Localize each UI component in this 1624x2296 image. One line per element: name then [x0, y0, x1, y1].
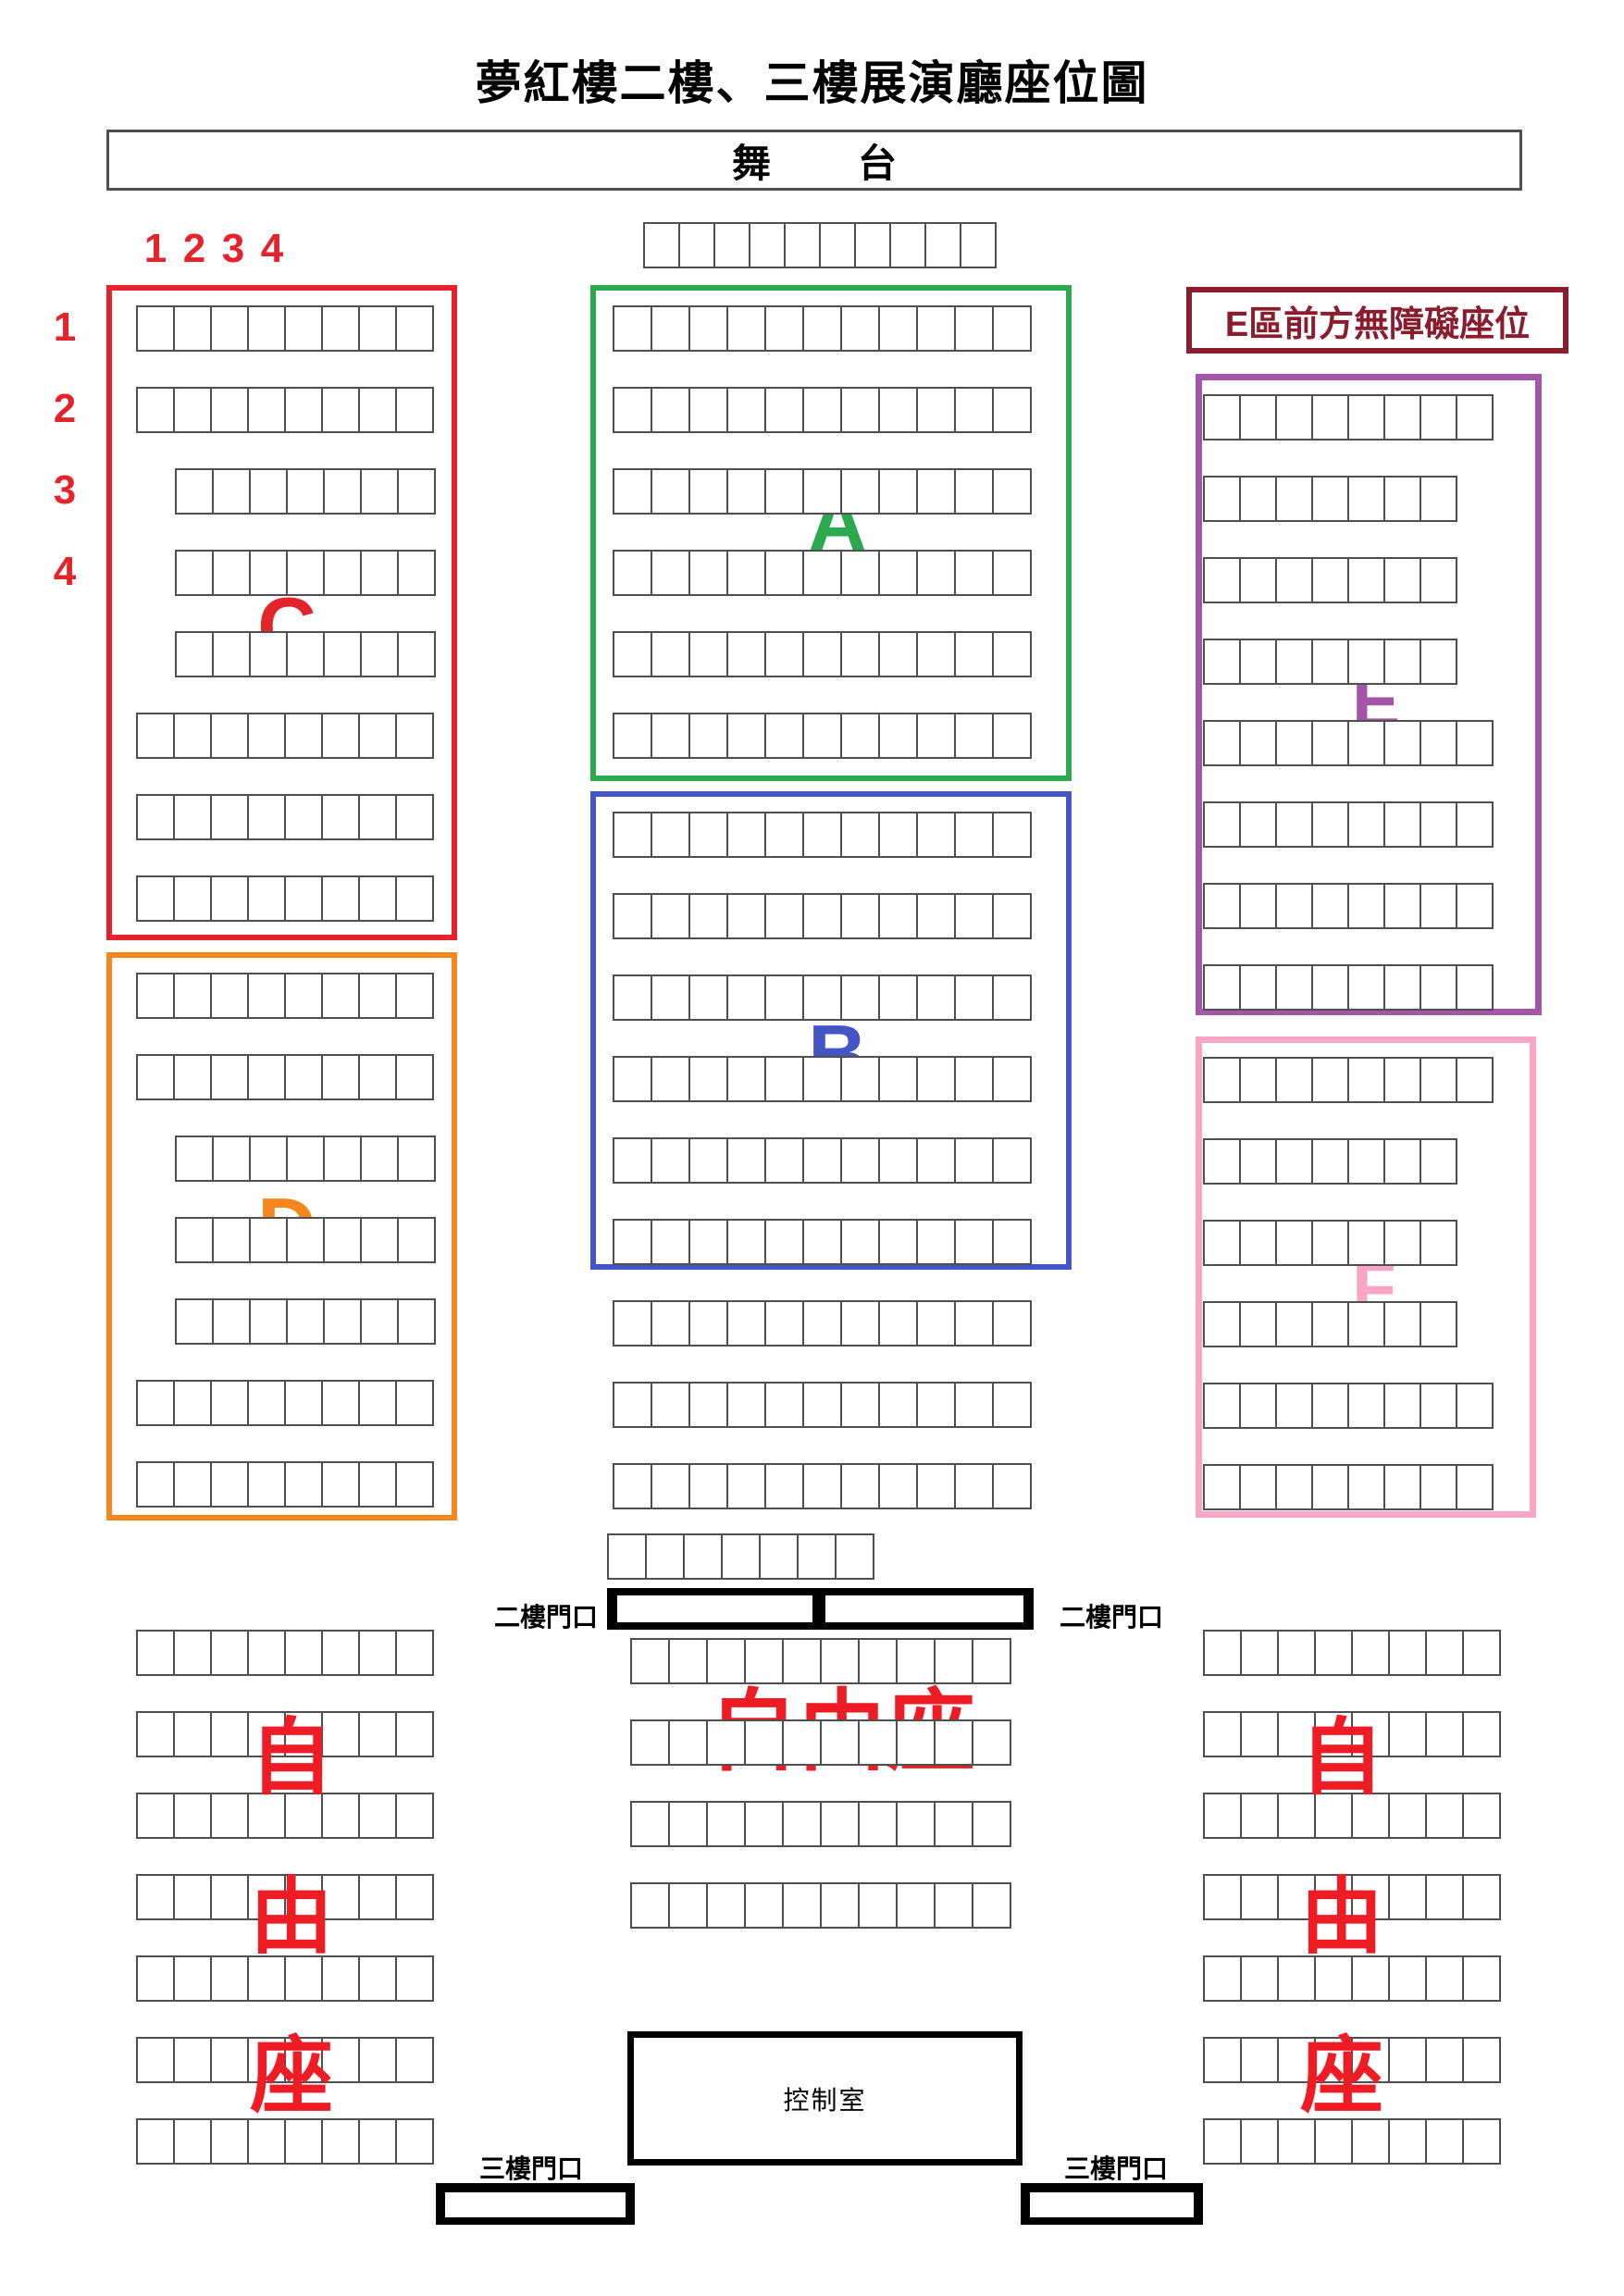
- seat: [688, 1137, 728, 1184]
- section-d-seat-row: [136, 1380, 434, 1426]
- seat: [840, 1056, 880, 1102]
- seat: [726, 1219, 766, 1265]
- e-accessible-label: E區前方無障礙座位: [1225, 295, 1530, 346]
- seat: [802, 550, 842, 596]
- seat: [1311, 883, 1349, 929]
- seat: [395, 713, 434, 759]
- seat: [173, 2037, 212, 2083]
- seat: [1275, 1301, 1313, 1347]
- seat: [1419, 476, 1457, 522]
- free-seating-label-left-char: 座: [250, 2035, 333, 2118]
- seat: [916, 1382, 956, 1428]
- stage-label: 舞 台: [708, 132, 921, 189]
- seat: [210, 875, 249, 922]
- seat: [782, 1882, 822, 1929]
- seat: [321, 305, 360, 352]
- seat: [358, 387, 397, 433]
- seat: [1203, 883, 1241, 929]
- seat: [1383, 1301, 1421, 1347]
- seat: [1240, 1793, 1279, 1839]
- seat: [726, 812, 766, 858]
- seat: [284, 1461, 323, 1508]
- seat: [992, 713, 1032, 759]
- seat: [360, 550, 399, 596]
- center-bottom-seat-row: [630, 1801, 1011, 1847]
- seat: [1311, 394, 1349, 441]
- seat: [1462, 1793, 1501, 1839]
- seat: [1314, 2118, 1353, 2165]
- seat: [1456, 964, 1494, 1011]
- seat: [323, 550, 362, 596]
- seat: [1419, 1138, 1457, 1185]
- seat: [651, 468, 690, 515]
- row-number-2: 2: [44, 389, 85, 429]
- seat: [1203, 639, 1241, 685]
- seat: [1388, 1955, 1427, 2002]
- entrance-3f-label-left: 三樓門口: [479, 2149, 583, 2186]
- mid-small-seat-row: [607, 1533, 874, 1580]
- seat: [136, 2118, 175, 2165]
- seat: [1203, 801, 1241, 848]
- seat: [759, 1533, 799, 1580]
- seat: [173, 1711, 212, 1757]
- seat: [360, 631, 399, 677]
- section-c-seat-row: [175, 631, 436, 677]
- section-f-seat-row: [1203, 1301, 1457, 1347]
- center-bottom-seat-row: [630, 1719, 1011, 1766]
- seat: [688, 713, 728, 759]
- section-e-seat-row: [1203, 801, 1494, 848]
- seat: [1462, 1630, 1501, 1676]
- seat: [1347, 639, 1385, 685]
- seat: [630, 1801, 670, 1847]
- seat: [992, 631, 1032, 677]
- seat: [395, 1955, 434, 2002]
- seat: [916, 387, 956, 433]
- seat: [878, 893, 918, 939]
- seat: [651, 631, 690, 677]
- seat: [744, 1882, 784, 1929]
- seat: [286, 1136, 325, 1182]
- seat: [173, 2118, 212, 2165]
- seat: [1456, 720, 1494, 766]
- seat: [954, 468, 994, 515]
- seat: [360, 1136, 399, 1182]
- seat: [688, 1300, 728, 1347]
- seat: [397, 550, 436, 596]
- seat: [651, 550, 690, 596]
- seat: [247, 1630, 286, 1676]
- seat: [395, 1793, 434, 1839]
- seat: [1275, 557, 1313, 603]
- seat: [1383, 557, 1421, 603]
- seat: [1240, 2118, 1279, 2165]
- seat: [175, 631, 214, 677]
- seat: [397, 1298, 436, 1345]
- seat: [210, 1955, 249, 2002]
- seat: [954, 713, 994, 759]
- seat: [840, 812, 880, 858]
- seat: [960, 222, 997, 268]
- section-e-seat-row: [1203, 557, 1457, 603]
- seat: [173, 1793, 212, 1839]
- seat: [1462, 2037, 1501, 2083]
- seat: [678, 222, 715, 268]
- seat: [1388, 1630, 1427, 1676]
- seat: [878, 974, 918, 1021]
- seat: [764, 1382, 804, 1428]
- section-d-seat-row: [175, 1298, 436, 1345]
- seat: [916, 1137, 956, 1184]
- section-b-seat-row: [613, 812, 1032, 858]
- seat: [1419, 1383, 1457, 1429]
- section-f-seat-row: [1203, 1464, 1494, 1510]
- seat: [683, 1533, 723, 1580]
- seat: [764, 1056, 804, 1102]
- seat: [1275, 720, 1313, 766]
- seat: [819, 222, 856, 268]
- seat: [688, 1463, 728, 1509]
- seat: [1347, 394, 1385, 441]
- seat: [916, 893, 956, 939]
- seat: [286, 1298, 325, 1345]
- seat: [1383, 801, 1421, 848]
- seat: [764, 1300, 804, 1347]
- seat: [1239, 801, 1277, 848]
- section-a-seat-row: [613, 305, 1032, 352]
- seat: [1275, 1464, 1313, 1510]
- seat: [395, 794, 434, 840]
- section-f-seat-row: [1203, 1057, 1494, 1103]
- entrance-3f-label-right: 三樓門口: [1064, 2149, 1168, 2186]
- section-c-seat-row: [136, 713, 434, 759]
- seat: [896, 1882, 936, 1929]
- seat: [358, 1380, 397, 1426]
- seat: [1383, 1138, 1421, 1185]
- seat: [651, 305, 690, 352]
- below-b-seat-row: [613, 1300, 1032, 1347]
- seat: [1419, 964, 1457, 1011]
- seat: [726, 1300, 766, 1347]
- seat: [878, 305, 918, 352]
- seat: [840, 1463, 880, 1509]
- seat: [212, 550, 251, 596]
- page-title: 夢紅樓二樓、三樓展演廳座位圖: [476, 46, 1149, 113]
- seat: [1347, 801, 1385, 848]
- section-c-seat-row: [136, 387, 434, 433]
- seat: [668, 1801, 708, 1847]
- seat: [358, 1630, 397, 1676]
- seat: [820, 1719, 860, 1766]
- seat: [744, 1801, 784, 1847]
- seat: [992, 974, 1032, 1021]
- seat: [395, 1874, 434, 1920]
- seat: [802, 387, 842, 433]
- seat: [1275, 476, 1313, 522]
- seat: [706, 1801, 746, 1847]
- entrance-3f-door-right-leaf: [1030, 2192, 1194, 2217]
- seat: [954, 550, 994, 596]
- seat: [858, 1801, 898, 1847]
- center-bottom-seat-row: [630, 1638, 1011, 1684]
- seat: [630, 1882, 670, 1929]
- seat: [397, 1136, 436, 1182]
- seat: [630, 1719, 670, 1766]
- seat: [802, 893, 842, 939]
- section-a-seat-row: [613, 468, 1032, 515]
- seat: [916, 974, 956, 1021]
- seat: [395, 2118, 434, 2165]
- seat: [1239, 639, 1277, 685]
- seat: [1203, 476, 1241, 522]
- seat: [1240, 2037, 1279, 2083]
- seat: [136, 2037, 175, 2083]
- seat: [136, 875, 175, 922]
- e-accessible-label-box: E區前方無障礙座位: [1186, 287, 1568, 354]
- seat: [358, 305, 397, 352]
- seat: [1347, 1383, 1385, 1429]
- seat: [1456, 1057, 1494, 1103]
- seat: [1311, 476, 1349, 522]
- seat: [1239, 1383, 1277, 1429]
- seat: [249, 468, 288, 515]
- column-number-2: 2: [175, 229, 214, 269]
- free-seating-label-left-char: 自: [250, 1717, 333, 1800]
- seat: [1456, 1464, 1494, 1510]
- seat: [613, 812, 652, 858]
- seat: [916, 1463, 956, 1509]
- seat: [212, 468, 251, 515]
- seat: [1347, 557, 1385, 603]
- entrance-3f-door-right: [1021, 2183, 1203, 2225]
- seat: [802, 1219, 842, 1265]
- free-seating-label-left-char: 由: [250, 1876, 333, 1959]
- seat: [992, 1219, 1032, 1265]
- seat: [173, 973, 212, 1019]
- entrance-3f-door-left-leaf: [445, 2192, 626, 2217]
- seat: [1275, 394, 1313, 441]
- seat: [284, 973, 323, 1019]
- seat: [764, 631, 804, 677]
- seat: [613, 1056, 652, 1102]
- seat: [1240, 1955, 1279, 2002]
- seat: [992, 387, 1032, 433]
- section-d-seat-row: [136, 1054, 434, 1100]
- seat: [764, 305, 804, 352]
- seat: [1347, 720, 1385, 766]
- seat: [726, 974, 766, 1021]
- right-free-seat-row: [1203, 1630, 1501, 1676]
- seat: [136, 794, 175, 840]
- seat: [782, 1801, 822, 1847]
- seat: [284, 1380, 323, 1426]
- section-b-seat-row: [613, 893, 1032, 939]
- seat: [1419, 801, 1457, 848]
- seat: [992, 550, 1032, 596]
- seat: [1275, 639, 1313, 685]
- seat: [1419, 394, 1457, 441]
- seat: [613, 631, 652, 677]
- center-bottom-seat-row: [630, 1882, 1011, 1929]
- seat: [1275, 883, 1313, 929]
- seat: [858, 1882, 898, 1929]
- seat: [613, 550, 652, 596]
- seat: [1311, 1383, 1349, 1429]
- seat: [395, 1711, 434, 1757]
- seat: [1275, 1057, 1313, 1103]
- seat: [645, 1533, 685, 1580]
- seat: [840, 713, 880, 759]
- seat: [916, 631, 956, 677]
- seat: [992, 1056, 1032, 1102]
- seat: [321, 1054, 360, 1100]
- seat: [323, 1136, 362, 1182]
- seat: [247, 973, 286, 1019]
- seat: [395, 1630, 434, 1676]
- seat: [764, 713, 804, 759]
- seat: [992, 1300, 1032, 1347]
- seat: [764, 468, 804, 515]
- seating-chart-canvas: 夢紅樓二樓、三樓展演廳座位圖 舞 台 E區前方無障礙座位 二樓門口 二樓門口 控…: [0, 0, 1624, 2296]
- seat: [247, 1461, 286, 1508]
- control-room-label: 控制室: [783, 2080, 866, 2117]
- section-c-seat-row: [136, 305, 434, 352]
- seat: [210, 1793, 249, 1839]
- seat: [321, 713, 360, 759]
- seat: [934, 1882, 973, 1929]
- seat: [972, 1719, 1011, 1766]
- seat: [916, 305, 956, 352]
- column-number-1: 1: [136, 229, 175, 269]
- seat: [726, 1463, 766, 1509]
- seat: [210, 1380, 249, 1426]
- seat: [896, 1719, 936, 1766]
- seat: [764, 812, 804, 858]
- seat: [173, 1630, 212, 1676]
- seat: [726, 387, 766, 433]
- column-number-4: 4: [253, 229, 291, 269]
- seat: [1275, 1383, 1313, 1429]
- seat: [1203, 2118, 1242, 2165]
- seat: [1239, 1464, 1277, 1510]
- seat: [726, 468, 766, 515]
- seat: [916, 1300, 956, 1347]
- seat: [136, 1793, 175, 1839]
- free-seating-label-right-char: 自: [1300, 1717, 1383, 1800]
- seat: [395, 305, 434, 352]
- seat: [651, 974, 690, 1021]
- seat: [1203, 1220, 1241, 1266]
- seat: [954, 1463, 994, 1509]
- seat: [1383, 1057, 1421, 1103]
- seat: [1239, 476, 1277, 522]
- seat: [613, 713, 652, 759]
- left-free-seat-row: [136, 2118, 434, 2165]
- seat: [210, 1054, 249, 1100]
- seat: [210, 387, 249, 433]
- seat: [247, 2118, 286, 2165]
- seat: [173, 875, 212, 922]
- seat: [173, 1461, 212, 1508]
- seat: [1203, 1057, 1241, 1103]
- seat: [992, 1137, 1032, 1184]
- free-seating-label-right-char: 由: [1300, 1876, 1383, 1959]
- seat: [840, 1219, 880, 1265]
- seat: [835, 1533, 874, 1580]
- seat: [764, 1219, 804, 1265]
- seat: [744, 1638, 784, 1684]
- seat: [782, 1719, 822, 1766]
- seat: [916, 550, 956, 596]
- seat: [613, 1382, 652, 1428]
- seat: [1388, 2037, 1427, 2083]
- seat: [397, 468, 436, 515]
- seat: [1425, 1630, 1464, 1676]
- seat: [360, 1217, 399, 1263]
- below-b-seat-row: [613, 1463, 1032, 1509]
- seat: [992, 1463, 1032, 1509]
- seat: [175, 1217, 214, 1263]
- seat: [782, 1638, 822, 1684]
- seat: [840, 468, 880, 515]
- seat: [1388, 2118, 1427, 2165]
- left-free-seat-row: [136, 1630, 434, 1676]
- seat: [878, 387, 918, 433]
- seat: [651, 1463, 690, 1509]
- seat: [1239, 394, 1277, 441]
- seat: [1456, 801, 1494, 848]
- control-room-box: 控制室: [627, 2031, 1023, 2166]
- seat: [1311, 801, 1349, 848]
- seat: [1311, 557, 1349, 603]
- seat: [972, 1801, 1011, 1847]
- seat: [358, 794, 397, 840]
- seat: [212, 1298, 251, 1345]
- seat: [916, 468, 956, 515]
- seat: [1239, 1301, 1277, 1347]
- seat: [726, 305, 766, 352]
- seat: [360, 468, 399, 515]
- seat: [1419, 883, 1457, 929]
- stage-box: 舞 台: [106, 130, 1522, 191]
- seat: [954, 1219, 994, 1265]
- seat: [726, 631, 766, 677]
- seat: [212, 1136, 251, 1182]
- seat: [284, 1054, 323, 1100]
- seat: [688, 468, 728, 515]
- seat: [878, 1463, 918, 1509]
- seat: [726, 713, 766, 759]
- seat: [1383, 1220, 1421, 1266]
- section-e-seat-row: [1203, 476, 1457, 522]
- section-c-seat-row: [136, 875, 434, 922]
- seat: [284, 387, 323, 433]
- seat: [1239, 720, 1277, 766]
- seat: [1347, 1301, 1385, 1347]
- seat: [321, 387, 360, 433]
- seat: [972, 1638, 1011, 1684]
- seat: [247, 1380, 286, 1426]
- seat: [992, 468, 1032, 515]
- seat: [764, 974, 804, 1021]
- seat: [840, 1137, 880, 1184]
- section-b-seat-row: [613, 1219, 1032, 1265]
- seat: [802, 631, 842, 677]
- seat: [210, 2037, 249, 2083]
- section-c-seat-row: [136, 794, 434, 840]
- seat: [136, 1461, 175, 1508]
- seat: [802, 812, 842, 858]
